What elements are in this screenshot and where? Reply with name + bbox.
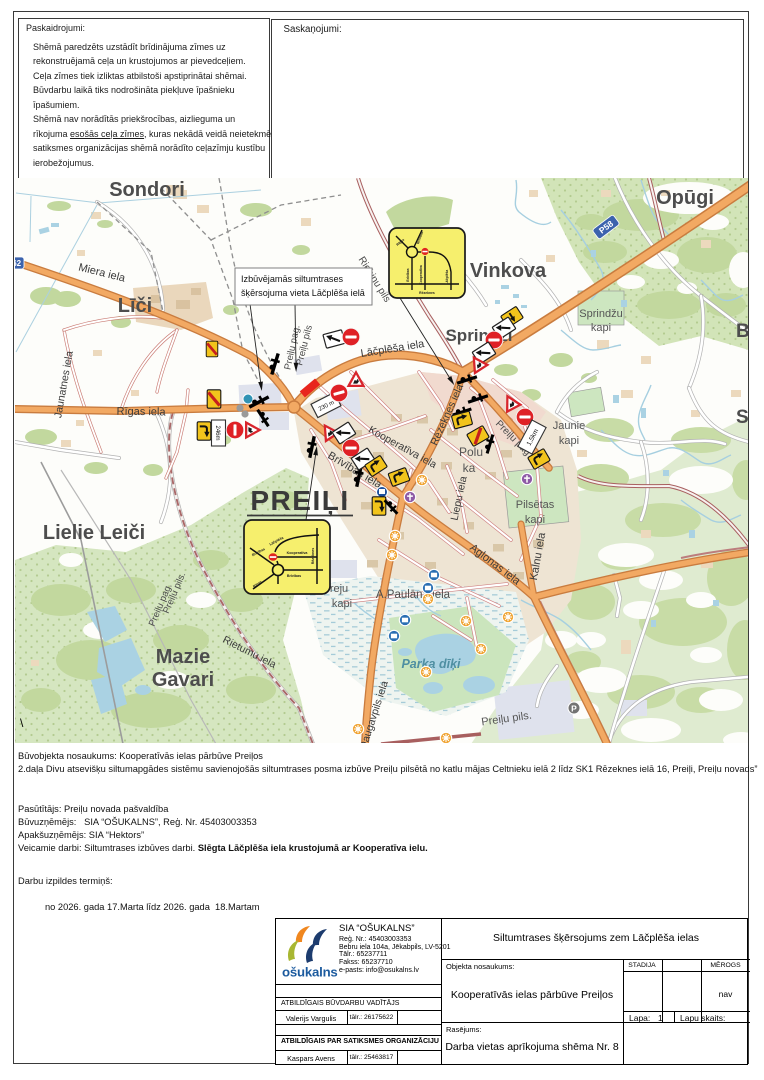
svg-text:Sprindžu: Sprindžu [579, 308, 622, 320]
svg-text:Vinkova: Vinkova [469, 260, 546, 282]
svg-text:Rīgas iela: Rīgas iela [116, 406, 166, 419]
svg-text:Brīvības: Brīvības [286, 574, 300, 578]
svg-text:reju: reju [329, 583, 347, 595]
svg-text:Kooperatīva: Kooperatīva [286, 551, 308, 555]
svg-text:Jaunie: Jaunie [552, 420, 584, 432]
svg-text:B: B [736, 321, 748, 342]
svg-text:Opūgi: Opūgi [656, 187, 714, 209]
svg-text:S: S [736, 407, 748, 428]
svg-text:Lielie Leiči: Lielie Leiči [42, 522, 144, 544]
svg-text:šķērsojuma vieta Lāčplēša ielā: šķērsojuma vieta Lāčplēša ielā [241, 288, 366, 298]
svg-text:ka: ka [462, 461, 475, 475]
svg-text:kapi: kapi [524, 514, 544, 526]
svg-text:kapi: kapi [558, 435, 578, 447]
svg-text:Polu: Polu [458, 445, 482, 459]
svg-text:kapi: kapi [590, 322, 610, 334]
svg-text:Rēzeknes: Rēzeknes [419, 291, 435, 295]
svg-text:P: P [571, 704, 577, 714]
svg-text:P62: P62 [15, 259, 22, 268]
svg-text:Kooperatīva: Kooperatīva [419, 265, 423, 285]
svg-text:Lāčplēša: Lāčplēša [445, 270, 449, 285]
svg-text:kapi: kapi [331, 598, 351, 610]
svg-text:PREIĻI: PREIĻI [250, 485, 349, 516]
svg-text:Mazie: Mazie [155, 646, 209, 668]
svg-text:Gavari: Gavari [151, 669, 213, 691]
svg-text:A.Paulāna iela: A.Paulāna iela [375, 589, 450, 601]
svg-text:ošukalns: ošukalns [282, 965, 338, 980]
svg-text:Līči: Līči [117, 295, 151, 317]
svg-text:Pilsētas: Pilsētas [515, 499, 554, 511]
svg-text:Brīvības: Brīvības [406, 268, 410, 281]
svg-text:Rēzeknes: Rēzeknes [311, 548, 315, 565]
svg-text:Sondori: Sondori [109, 179, 185, 201]
svg-text:246m: 246m [214, 425, 220, 440]
svg-text:Izbūvējamās siltumtrases: Izbūvējamās siltumtrases [241, 274, 344, 284]
